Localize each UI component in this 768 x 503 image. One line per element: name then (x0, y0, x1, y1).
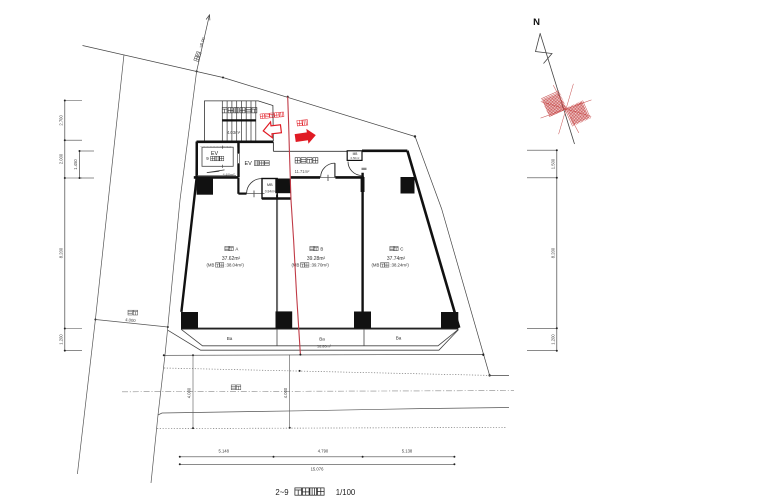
svg-text:15.076: 15.076 (311, 466, 324, 471)
svg-text:A: A (235, 246, 238, 251)
svg-text:8.200: 8.200 (550, 247, 555, 258)
svg-text:5.148: 5.148 (218, 449, 229, 454)
svg-text:(MB: (MB (207, 263, 215, 268)
svg-text:C: C (400, 246, 403, 251)
svg-text:1.200: 1.200 (550, 334, 555, 345)
svg-text:Ba: Ba (319, 337, 325, 342)
svg-text:2.000: 2.000 (58, 153, 63, 164)
svg-text:16.80m²: 16.80m² (317, 344, 332, 348)
svg-text::39.70m²): :39.70m²) (310, 263, 329, 268)
svg-text:B: B (320, 246, 323, 251)
svg-text:37.74m²: 37.74m² (387, 256, 406, 262)
svg-text:=6.00: =6.00 (198, 36, 207, 48)
svg-text:37.62m²: 37.62m² (222, 256, 241, 262)
svg-text:0.84m²: 0.84m² (265, 189, 276, 193)
svg-text:Ba: Ba (227, 336, 233, 341)
svg-text:4.790: 4.790 (318, 449, 329, 454)
svg-text:Ba: Ba (396, 336, 402, 341)
svg-text:1.450: 1.450 (73, 159, 78, 170)
svg-text:8.200: 8.200 (58, 247, 63, 258)
svg-text:N: N (533, 17, 540, 28)
svg-text:2~9: 2~9 (275, 488, 288, 497)
svg-text:2.700: 2.700 (58, 114, 63, 125)
svg-text:9: 9 (206, 156, 209, 161)
svg-text::38.04m²): :38.04m²) (225, 263, 244, 268)
svg-text:39.28m²: 39.28m² (307, 256, 326, 262)
svg-text:(MB: (MB (372, 263, 380, 268)
svg-text:1.200: 1.200 (58, 334, 63, 345)
svg-text:4.000: 4.000 (283, 387, 288, 398)
svg-text:MB: MB (267, 183, 273, 187)
svg-text:EV: EV (245, 161, 253, 167)
svg-text:4.60m²: 4.60m² (222, 172, 235, 177)
svg-text:1.500: 1.500 (550, 158, 555, 169)
svg-text:1/100: 1/100 (336, 488, 356, 497)
svg-text:5.138: 5.138 (402, 449, 413, 454)
svg-text:4.03m²: 4.03m² (227, 130, 241, 135)
svg-text:11.71m²: 11.71m² (295, 169, 310, 174)
svg-text:4.000: 4.000 (186, 387, 191, 398)
svg-text:4.000: 4.000 (125, 317, 137, 323)
svg-text:0.50m²: 0.50m² (351, 156, 360, 160)
svg-text::38.24m²): :38.24m²) (390, 263, 409, 268)
